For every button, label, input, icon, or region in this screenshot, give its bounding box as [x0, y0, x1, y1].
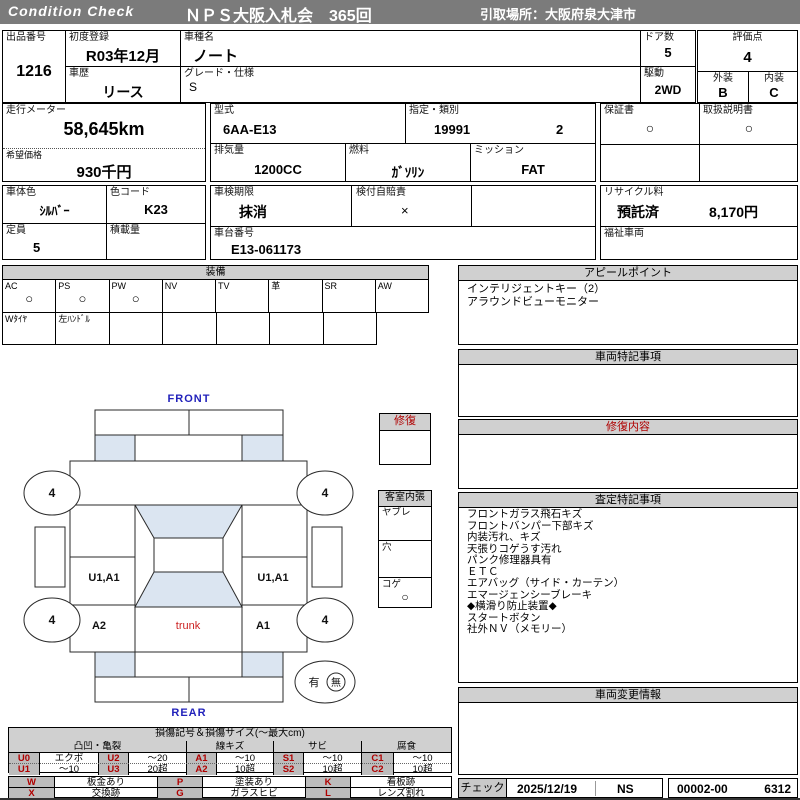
exterior-grade-value: B — [698, 85, 748, 100]
damage-left-door: U1,A1 — [88, 572, 119, 584]
equipment-label: AW — [376, 280, 428, 292]
legend-size: 10超 — [216, 764, 273, 775]
model-code-cell: 型式 6AA-E13 — [210, 103, 406, 144]
appeal-header: アピールポイント — [459, 266, 797, 281]
first-registration-value: R03年12月 — [66, 45, 180, 66]
legend-marks-table: W 板金あり P 塗装あり K 看板跡 X 交換跡 G ガラスヒビ L レンズ割… — [8, 776, 452, 798]
legend-group: 線キズ — [186, 741, 273, 752]
assessment-title: 査定特記事項 — [595, 494, 661, 506]
assessment-section: 査定特記事項 フロントガラス飛石キズ フロントバンパー下部キズ 内装汚れ、キズ … — [458, 492, 798, 683]
class-label: 指定・類別 — [406, 104, 462, 117]
grade-value: S — [189, 80, 197, 94]
class-value-2: 2 — [556, 122, 563, 137]
rear-label: REAR — [171, 707, 206, 719]
equipment-label: TV — [216, 280, 268, 292]
damage-right-door: U1,A1 — [257, 572, 288, 584]
roof — [154, 538, 223, 572]
legend-mark-code: K — [305, 777, 350, 787]
equipment-cell-ac: AC○ — [3, 280, 55, 312]
documents-box: 保証書 ○ 取扱説明書 ○ — [600, 103, 798, 182]
windshield — [135, 505, 242, 538]
equipment-extra-cell — [269, 313, 322, 344]
legend-code: A2 — [186, 764, 216, 775]
equipment-label: SR — [323, 280, 375, 292]
model-name-cell: 車種名 ノート — [180, 30, 641, 67]
welfare-label: 福祉車両 — [601, 227, 647, 240]
equipment-cell-aw: AW — [375, 280, 428, 312]
equipment-extra-label — [324, 313, 376, 315]
front-corner-glass-right — [242, 435, 283, 461]
score-value: 4 — [698, 49, 797, 66]
equipment-cell-sr: SR — [322, 280, 375, 312]
legend-row-2: U1 ～10 U3 20超 A2 10超 S2 10超 C2 10超 — [9, 763, 451, 775]
repair-info-header: 修復内容 — [459, 420, 797, 435]
tire-depth-front-right: 4 — [322, 486, 329, 500]
legend-table: 損傷記号＆損傷サイズ(～最大cm) 凸凹・亀裂 線キズ サビ 腐食 U0 エクボ… — [8, 727, 452, 773]
condition-check-sheet: Condition Check ＮＰＳ大阪入札会 365回 引取場所：大阪府泉大… — [0, 0, 800, 800]
first-registration-label: 初度登録 — [66, 31, 112, 44]
lot-number-cell: 出品番号 1216 — [2, 30, 66, 103]
repair-info-title: 修復内容 — [606, 421, 650, 433]
equipment-label: NV — [163, 280, 215, 292]
tire-depth-rear-left: 4 — [49, 613, 56, 627]
repair-info-section: 修復内容 — [458, 419, 798, 489]
legend-group: 凸凹・亀裂 — [9, 741, 186, 752]
equipment-extra-label: 左ﾊﾝﾄﾞﾙ — [56, 313, 108, 325]
inspection-vin-box: 車検期限 抹消 検付自賠責 × 車台番号 E13-061173 — [210, 185, 596, 260]
model-name-label: 車種名 — [181, 31, 217, 44]
lot-number-label: 出品番号 — [3, 31, 49, 44]
odometer-value: 58,645km — [3, 119, 205, 140]
insurance-mark: × — [401, 203, 409, 218]
equipment-mark: ○ — [56, 291, 108, 306]
check-date-box: 2025/12/19 NS — [506, 778, 663, 798]
repair-flag-header: 修復 — [380, 414, 430, 431]
equipment-cell-leather: 革 — [268, 280, 321, 312]
legend-code: U1 — [9, 764, 39, 775]
vin-value: E13-061173 — [231, 242, 301, 257]
equipment-extra-cell: Wﾀｲﾔ — [3, 313, 55, 344]
drive-cell: 駆動 2WD — [640, 66, 696, 103]
manual-label: 取扱説明書 — [700, 104, 756, 117]
appeal-line: アラウンドビューモニター — [467, 296, 789, 309]
doors-cell: ドア数 5 — [640, 30, 696, 67]
cabin-interior-header: 客室内張 — [379, 491, 431, 507]
assessment-line: エアバッグ（サイド・カーテン） — [467, 578, 789, 590]
check-number: 6312 — [764, 782, 791, 796]
left-sill — [35, 527, 65, 587]
color-code-value: K23 — [107, 202, 205, 217]
equipment-extra-cell — [216, 313, 269, 344]
odometer-price-box: 走行メーター 58,645km 希望価格 930千円 — [2, 103, 206, 182]
appeal-title: アピールポイント — [584, 267, 672, 279]
legend-group: 腐食 — [361, 741, 451, 752]
cabin-interior-box: 客室内張 ヤブレ 穴 コゲ ○ — [378, 490, 432, 608]
equipment-cell-nv: NV — [162, 280, 215, 312]
header-bar: Condition Check ＮＰＳ大阪入札会 365回 引取場所：大阪府泉大… — [0, 0, 800, 24]
check-code: 00002-00 — [677, 782, 728, 796]
spare-yes-label: 有 — [309, 675, 320, 689]
assessment-header: 査定特記事項 — [459, 493, 797, 508]
cabin-row-label: ヤブレ — [379, 506, 414, 519]
assessment-content: フロントガラス飛石キズ フロントバンパー下部キズ 内装汚れ、キズ 天張りコゲうす… — [459, 507, 797, 682]
warranty-mark: ○ — [601, 120, 699, 136]
fuel-cell: 燃料 ｶﾞｿﾘﾝ — [345, 143, 471, 182]
inspection-value: 抹消 — [239, 202, 267, 222]
repair-flag-title: 修復 — [394, 415, 416, 427]
transmission-value: FAT — [471, 162, 595, 177]
capacity-value: 5 — [33, 240, 40, 255]
recycle-status: 預託済 — [617, 202, 659, 222]
legend-title: 損傷記号＆損傷サイズ(～最大cm) — [155, 728, 305, 739]
check-date: 2025/12/19 — [517, 782, 577, 796]
spare-tire-indicator — [295, 661, 355, 703]
insurance-label: 検付自賠責 — [353, 186, 409, 199]
inspection-label: 車検期限 — [211, 186, 257, 199]
assessment-line: 社外ＮＶ（メモリー） — [467, 624, 789, 636]
assessment-line: フロントガラス飛石キズ — [467, 509, 789, 521]
right-sill — [312, 527, 342, 587]
changes-title: 車両変更情報 — [595, 689, 661, 701]
doors-label: ドア数 — [641, 31, 677, 44]
equipment-extra-label — [217, 313, 269, 315]
fuel-label: 燃料 — [346, 144, 372, 157]
tire-depth-front-left: 4 — [49, 486, 56, 500]
grade-cell: グレード・仕様 S — [180, 66, 641, 103]
exterior-label: 外装 — [698, 72, 748, 85]
color-capacity-box: 車体色 ｼﾙﾊﾞｰ 色コード K23 定員 5 積載量 — [2, 185, 206, 260]
vehicle-notes-section: 車両特記事項 — [458, 349, 798, 417]
recycle-welfare-box: リサイクル料 預託済 8,170円 福祉車両 — [600, 185, 798, 260]
equipment-extra-label — [110, 313, 162, 315]
vehicle-notes-header: 車両特記事項 — [459, 350, 797, 365]
legend-mark-code: G — [157, 788, 202, 798]
equipment-extra-cell — [323, 313, 376, 344]
legend-size: 20超 — [128, 764, 186, 775]
equipment-extra-cell: 左ﾊﾝﾄﾞﾙ — [55, 313, 108, 344]
trunk-label: trunk — [176, 620, 201, 632]
legend-mark-code: L — [305, 788, 350, 798]
equipment-cell-ps: PS○ — [55, 280, 108, 312]
color-code-label: 色コード — [107, 186, 153, 199]
legend-size: 10超 — [303, 764, 361, 775]
body-color-label: 車体色 — [3, 186, 39, 199]
payload-label: 積載量 — [107, 224, 143, 237]
damage-left-quarter: A2 — [92, 620, 106, 632]
brand-logo: Condition Check — [8, 3, 134, 19]
drive-label: 駆動 — [641, 67, 667, 80]
grade-label: グレード・仕様 — [181, 67, 257, 80]
check-label-cell: チェック — [458, 778, 507, 798]
appeal-content: インテリジェントキー（2） アラウンドビューモニター — [459, 280, 797, 344]
rear-corner-glass-right — [242, 652, 283, 677]
equipment-mark: ○ — [110, 291, 162, 306]
repair-flag-box: 修復 — [379, 413, 431, 465]
legend-mark-label: 看板跡 — [350, 777, 451, 787]
front-corner-glass-left — [95, 435, 135, 461]
equipment-label: 革 — [269, 280, 321, 292]
score-label: 評価点 — [698, 31, 797, 44]
cabin-row-label: 穴 — [379, 541, 395, 554]
legend-group: サビ — [273, 741, 361, 752]
equipment-row-main: AC○ PS○ PW○ NV TV 革 SR AW — [2, 279, 429, 313]
capacity-label: 定員 — [3, 224, 29, 237]
legend-group-row: 凸凹・亀裂 線キズ サビ 腐食 — [9, 741, 451, 752]
legend-mark-label: ガラスヒビ — [202, 788, 305, 798]
transmission-cell: ミッション FAT — [470, 143, 596, 182]
equipment-extra-cell — [109, 313, 162, 344]
spare-no-label: 無 — [331, 676, 341, 689]
body-color-value: ｼﾙﾊﾞｰ — [3, 202, 106, 219]
assessment-line: ◆横滑り防止装置◆ — [467, 601, 789, 613]
legend-mark-label: 板金あり — [54, 777, 157, 787]
equipment-extra-label — [163, 313, 215, 315]
tire-depth-rear-right: 4 — [322, 613, 329, 627]
recycle-fee: 8,170円 — [709, 202, 758, 222]
cabin-row-mark: ○ — [379, 590, 431, 604]
history-cell: 車歴 リース — [65, 66, 181, 103]
transmission-label: ミッション — [471, 144, 527, 157]
fuel-value: ｶﾞｿﾘﾝ — [346, 162, 470, 181]
displacement-label: 排気量 — [211, 144, 247, 157]
check-label: チェック — [461, 782, 505, 794]
recycle-label: リサイクル料 — [601, 186, 667, 199]
car-damage-diagram: 4 4 4 4 U1,A1 U1,A1 A2 A1 FRONT REAR tru… — [20, 393, 380, 723]
legend-marks-row-2: X 交換跡 G ガラスヒビ L レンズ割れ — [9, 787, 451, 798]
assessment-line: パンク修理器具有 — [467, 555, 789, 567]
repair-info-content — [459, 434, 797, 488]
assessment-line: 内装汚れ、キズ — [467, 532, 789, 544]
history-label: 車歴 — [66, 67, 92, 80]
front-label: FRONT — [168, 393, 211, 405]
price-value: 930千円 — [3, 161, 205, 182]
displacement-value: 1200CC — [211, 162, 345, 177]
legend-mark-label: 塗装あり — [202, 777, 305, 787]
manual-mark: ○ — [700, 120, 798, 136]
interior-label: 内装 — [749, 72, 799, 85]
equipment-cell-pw: PW○ — [109, 280, 162, 312]
equipment-header: 装備 — [2, 265, 429, 280]
vin-label: 車台番号 — [211, 227, 257, 240]
equipment-extra-cell — [162, 313, 215, 344]
legend-mark-code: W — [9, 777, 54, 787]
score-box: 評価点 4 外装 B 内装 C — [697, 30, 798, 103]
legend-marks-row-1: W 板金あり P 塗装あり K 看板跡 — [9, 777, 451, 787]
legend-mark-code: X — [9, 788, 54, 798]
first-registration-cell: 初度登録 R03年12月 — [65, 30, 181, 67]
legend-size: ～10 — [39, 764, 98, 775]
warranty-label: 保証書 — [601, 104, 637, 117]
equipment-extra-label — [270, 313, 322, 315]
pickup-location: 引取場所：大阪府泉大津市 — [480, 4, 636, 23]
history-value: リース — [66, 82, 180, 102]
legend-mark-label: レンズ割れ — [350, 788, 451, 798]
lot-number-value: 1216 — [3, 63, 65, 81]
displacement-cell: 排気量 1200CC — [210, 143, 346, 182]
legend-header: 損傷記号＆損傷サイズ(～最大cm) — [9, 728, 451, 742]
legend-code: C2 — [361, 764, 393, 775]
equipment-title: 装備 — [206, 267, 226, 278]
model-name-value: ノート — [193, 45, 238, 66]
vehicle-notes-content — [459, 364, 797, 416]
legend-size: 10超 — [393, 764, 451, 775]
equipment-row-extra: Wﾀｲﾔ 左ﾊﾝﾄﾞﾙ — [2, 312, 377, 345]
legend-code: S2 — [273, 764, 303, 775]
class-cell: 指定・類別 19991 2 — [405, 103, 596, 144]
vehicle-notes-title: 車両特記事項 — [595, 351, 661, 363]
drive-value: 2WD — [641, 83, 695, 97]
legend-mark-label: 交換跡 — [54, 788, 157, 798]
equipment-extra-label: Wﾀｲﾔ — [3, 313, 55, 325]
equipment-mark: ○ — [3, 291, 55, 306]
changes-header: 車両変更情報 — [459, 688, 797, 703]
rear-corner-glass-left — [95, 652, 135, 677]
cabin-interior-title: 客室内張 — [385, 492, 425, 503]
appeal-line: インテリジェントキー（2） — [467, 283, 789, 296]
rear-window — [135, 572, 242, 607]
damage-right-quarter: A1 — [256, 620, 270, 632]
class-value-1: 19991 — [434, 122, 470, 137]
interior-grade-value: C — [749, 85, 799, 100]
legend-code: U3 — [98, 764, 128, 775]
model-code-label: 型式 — [211, 104, 237, 117]
check-code-box: 00002-00 6312 — [668, 778, 798, 798]
appeal-section: アピールポイント インテリジェントキー（2） アラウンドビューモニター — [458, 265, 798, 345]
changes-section: 車両変更情報 — [458, 687, 798, 775]
legend-mark-code: P — [157, 777, 202, 787]
changes-content — [459, 702, 797, 774]
doors-value: 5 — [641, 45, 695, 60]
auction-title: ＮＰＳ大阪入札会 365回 — [185, 2, 372, 26]
odometer-label: 走行メーター — [3, 104, 69, 117]
check-inspector: NS — [617, 782, 634, 796]
model-code-value: 6AA-E13 — [223, 122, 276, 137]
equipment-cell-tv: TV — [215, 280, 268, 312]
